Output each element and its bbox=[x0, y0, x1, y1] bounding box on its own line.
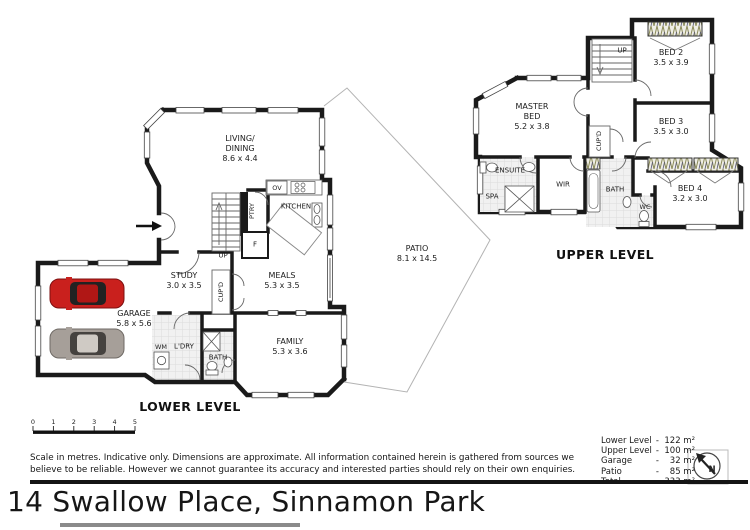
page-title: 14 Swallow Place, Sinnamon Park bbox=[7, 485, 485, 518]
room-label: FAMILY bbox=[277, 337, 304, 346]
room-dims: 3.5 x 3.9 bbox=[653, 58, 688, 68]
room-label: OV bbox=[272, 184, 281, 192]
room-ldry: L'DRY bbox=[174, 343, 194, 352]
room-garage: GARAGE5.8 x 5.6 bbox=[116, 309, 151, 329]
grey-car-icon bbox=[50, 327, 124, 360]
lower-level-label: LOWER LEVEL bbox=[139, 399, 241, 415]
room-dims: 3.2 x 3.0 bbox=[672, 194, 707, 204]
room-dims: 3.0 x 3.5 bbox=[166, 281, 201, 291]
room-label: BED 3 bbox=[659, 117, 683, 126]
room-label: MEALS bbox=[269, 271, 296, 280]
room-dims: 5.3 x 3.5 bbox=[264, 281, 299, 291]
washing-machine-icon bbox=[154, 352, 169, 369]
room-label: F bbox=[253, 241, 257, 249]
room-label: L'DRY bbox=[174, 343, 194, 351]
room-bed2: BED 23.5 x 3.9 bbox=[653, 48, 688, 68]
room-label: WIR bbox=[556, 181, 570, 189]
room-label: BATH bbox=[209, 354, 228, 362]
room-label: PATIO bbox=[406, 244, 429, 253]
room-label: KITCHEN bbox=[281, 203, 311, 211]
north-label: N bbox=[708, 465, 715, 475]
room-dims: 5.8 x 5.6 bbox=[116, 319, 151, 329]
room-label: CUP'D bbox=[217, 282, 225, 302]
room-fridge: F bbox=[253, 241, 257, 250]
room-label: CUP'D bbox=[595, 131, 603, 151]
bathtub-icon bbox=[587, 170, 600, 212]
level-label-text: LOWER LEVEL bbox=[139, 399, 241, 414]
scale-tick-2: 2 bbox=[72, 418, 76, 426]
room-dims: 5.2 x 3.8 bbox=[514, 122, 549, 132]
scale-tick-5: 5 bbox=[133, 418, 137, 426]
upper-level-label: UPPER LEVEL bbox=[556, 247, 654, 263]
room-ptry: PTRY bbox=[248, 203, 256, 219]
room-label: PTRY bbox=[248, 203, 256, 219]
area-value: -100 m² bbox=[656, 446, 695, 456]
room-living-dining: LIVING/ DINING8.6 x 4.4 bbox=[222, 134, 257, 164]
area-label: Garage bbox=[601, 456, 632, 466]
pantry-wall bbox=[240, 192, 248, 236]
room-label: STUDY bbox=[171, 271, 197, 280]
disclaimer-text: Scale in metres. Indicative only. Dimens… bbox=[30, 452, 590, 476]
scale-bar bbox=[33, 426, 135, 434]
area-label: Upper Level bbox=[601, 446, 652, 456]
room-dims: 3.5 x 3.0 bbox=[653, 127, 688, 137]
room-cupd-upper: CUP'D bbox=[595, 131, 603, 151]
room-label: BED 2 bbox=[659, 48, 683, 57]
room-label: WM bbox=[155, 343, 167, 351]
room-label: UP bbox=[617, 47, 626, 55]
room-dims: 8.6 x 4.4 bbox=[222, 154, 257, 164]
room-label: SPA bbox=[485, 193, 498, 201]
room-label: MASTER BED bbox=[516, 102, 549, 121]
room-up-upper: UP bbox=[617, 47, 626, 56]
room-cupd-lower: CUP'D bbox=[217, 282, 225, 302]
room-bath-upper: BATH bbox=[606, 186, 625, 195]
room-label: LIVING/ DINING bbox=[225, 134, 255, 153]
bath-basin-icon bbox=[623, 197, 631, 208]
room-wir: WIR bbox=[556, 181, 570, 190]
kitchen-sink-icon bbox=[312, 203, 322, 227]
room-label: BED 4 bbox=[678, 184, 702, 193]
room-wc: WC bbox=[640, 203, 651, 211]
divider-line bbox=[30, 480, 748, 484]
room-label: GARAGE bbox=[117, 309, 151, 318]
room-bed3: BED 33.5 x 3.0 bbox=[653, 117, 688, 137]
red-car-icon bbox=[50, 277, 124, 310]
bottom-partial-line bbox=[60, 523, 300, 527]
room-ensuite: ENSUITE bbox=[495, 167, 525, 176]
room-up-lower: UP bbox=[218, 252, 227, 261]
area-row: Garage-32 m² bbox=[601, 456, 695, 466]
room-label: BATH bbox=[606, 186, 625, 194]
patio-outline bbox=[324, 88, 490, 392]
room-bed4: BED 43.2 x 3.0 bbox=[672, 184, 707, 204]
floor-plan-page: LIVING/ DINING8.6 x 4.4 KITCHEN OV PTRY … bbox=[0, 0, 750, 530]
area-value: -32 m² bbox=[656, 456, 695, 466]
room-label: UP bbox=[218, 252, 227, 260]
room-dims: 5.3 x 3.6 bbox=[272, 347, 307, 357]
room-kitchen: KITCHEN bbox=[281, 203, 311, 212]
room-label: ENSUITE bbox=[495, 167, 525, 175]
entry-arrow-icon bbox=[136, 221, 162, 231]
room-spa: SPA bbox=[485, 193, 498, 202]
room-family: FAMILY5.3 x 3.6 bbox=[272, 337, 307, 357]
scale-tick-1: 1 bbox=[51, 418, 55, 426]
area-label: Lower Level bbox=[601, 436, 652, 446]
room-meals: MEALS5.3 x 3.5 bbox=[264, 271, 299, 291]
room-label: WC bbox=[640, 203, 651, 211]
wc-toilet-icon bbox=[639, 211, 649, 227]
room-master-bed: MASTER BED5.2 x 3.8 bbox=[514, 102, 549, 132]
scale-tick-3: 3 bbox=[92, 418, 96, 426]
area-label: Patio bbox=[601, 467, 622, 477]
area-value: -85 m² bbox=[656, 467, 695, 477]
level-label-text: UPPER LEVEL bbox=[556, 247, 654, 262]
room-study: STUDY3.0 x 3.5 bbox=[166, 271, 201, 291]
area-row: Lower Level-122 m² bbox=[601, 436, 695, 446]
toilet-icon bbox=[206, 362, 218, 376]
spa-icon bbox=[505, 186, 534, 212]
room-dims: 8.1 x 14.5 bbox=[397, 254, 437, 264]
room-ov: OV bbox=[272, 184, 281, 192]
shower-icon bbox=[203, 332, 220, 351]
entry-door bbox=[161, 213, 175, 240]
room-wm: WM bbox=[155, 343, 167, 351]
area-row: Upper Level-100 m² bbox=[601, 446, 695, 456]
area-value: -122 m² bbox=[656, 436, 695, 446]
scale-tick-0: 0 bbox=[31, 418, 35, 426]
stairs-icon bbox=[212, 193, 240, 251]
upper-stairs-icon bbox=[592, 39, 632, 82]
room-bath-lower: BATH bbox=[209, 354, 228, 363]
sliding-door bbox=[328, 255, 333, 301]
scale-tick-4: 4 bbox=[113, 418, 117, 426]
room-patio: PATIO8.1 x 14.5 bbox=[397, 244, 437, 264]
area-row: Patio-85 m² bbox=[601, 467, 695, 477]
